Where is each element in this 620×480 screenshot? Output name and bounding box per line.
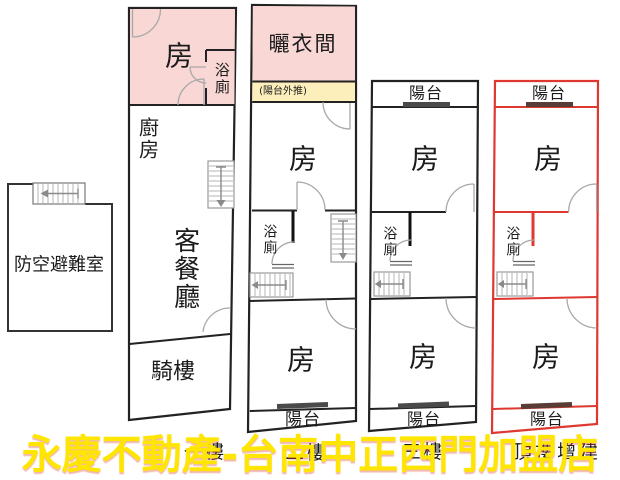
plan1-kitchen-label: 廚房 bbox=[137, 117, 158, 161]
plan1-bath-label: 浴廁 bbox=[213, 62, 229, 96]
plan4-room-upper-label: 房 bbox=[534, 144, 562, 173]
plan4-balcony-bottom-label: 陽台 bbox=[530, 412, 564, 429]
plan1-arcade-label: 騎樓 bbox=[151, 360, 195, 383]
plan2-balcony-label: 陽台 bbox=[285, 412, 321, 430]
plan3-stairs bbox=[374, 272, 410, 296]
plan3-balcony-top-label: 陽台 bbox=[409, 86, 443, 103]
plan3-balcony-bottom-label: 陽台 bbox=[407, 412, 441, 429]
plan4-window-bar-bottom bbox=[521, 405, 572, 407]
plan3-bath-label: 浴廁 bbox=[382, 226, 397, 258]
plan2-stairs-up bbox=[331, 214, 356, 262]
floorplan-image: 防空避難室 房 浴廁 廚房 客餐廳 騎樓 一樓 曬衣間 (陽台外推) 房 浴廁 … bbox=[0, 0, 620, 480]
shelter-label: 防空避難室 bbox=[14, 257, 104, 276]
plan2-balcony-note-label: (陽台外推) bbox=[259, 87, 307, 98]
plan3-room-upper-label: 房 bbox=[411, 144, 439, 173]
plan4-room-lower-label: 房 bbox=[532, 342, 560, 371]
plan2-bath-label: 浴廁 bbox=[262, 224, 277, 256]
floorplan-drawing bbox=[0, 0, 620, 480]
plan3-room-lower-label: 房 bbox=[409, 342, 437, 371]
plan4-balcony-top-label: 陽台 bbox=[532, 86, 566, 103]
plan2-room-lower-label: 房 bbox=[287, 345, 315, 374]
plan1-living-dining-label: 客餐廳 bbox=[170, 227, 197, 311]
plan3-window-bar-bottom bbox=[398, 404, 449, 406]
agency-watermark: 永慶不動產-台南中正西門加盟店 bbox=[0, 433, 620, 479]
plan1-room-label: 房 bbox=[165, 41, 193, 70]
plan2-room-upper-label: 房 bbox=[289, 144, 317, 173]
plan2-stairs-down bbox=[250, 273, 293, 297]
plan2-window-bar bbox=[277, 405, 328, 407]
plan2-drying-room-label: 曬衣間 bbox=[269, 33, 338, 55]
plan1-stairs bbox=[208, 161, 234, 208]
plan4-bath-label: 浴廁 bbox=[505, 226, 520, 258]
plan4-stairs bbox=[497, 272, 533, 296]
shelter-stairs bbox=[33, 183, 85, 204]
